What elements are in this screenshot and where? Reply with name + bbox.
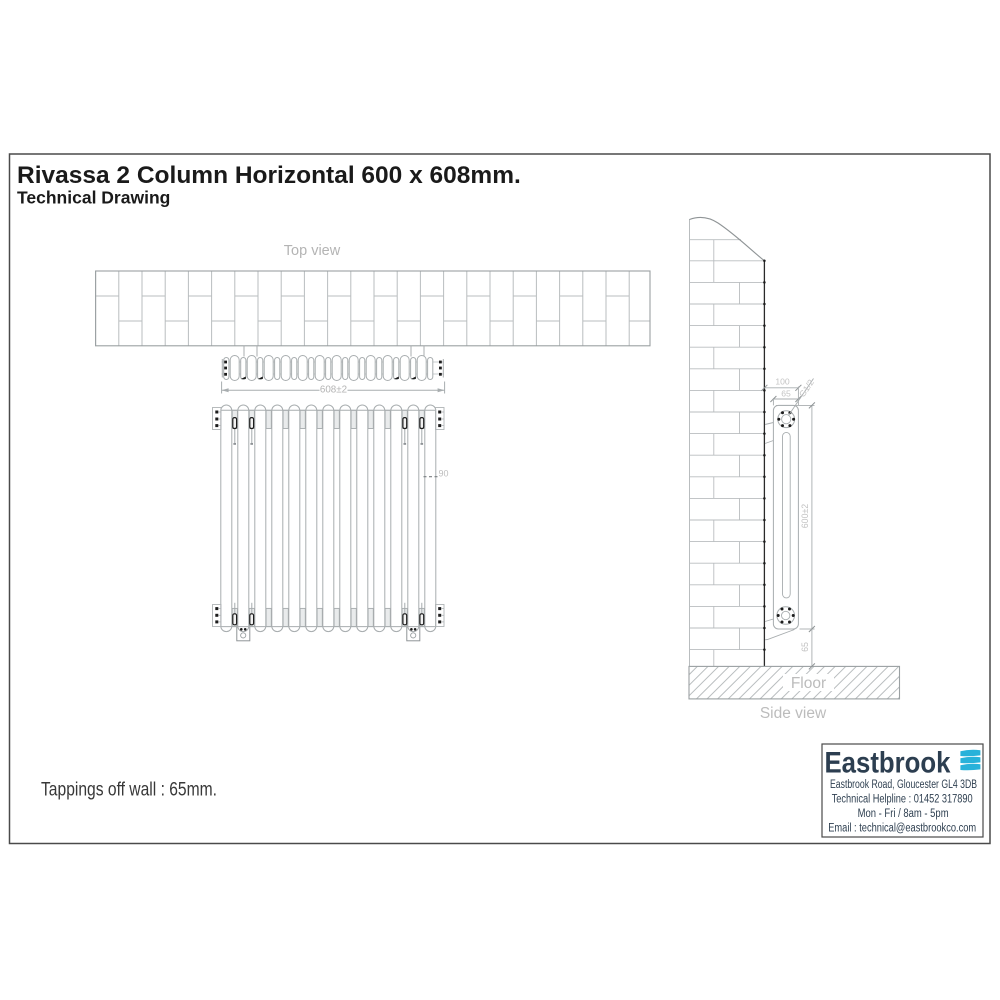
svg-text:Side view: Side view	[760, 705, 827, 722]
svg-text:Eastbrook Road, Gloucester GL4: Eastbrook Road, Gloucester GL4 3DB	[830, 779, 977, 791]
svg-text:Tappings off wall : 65mm.: Tappings off wall : 65mm.	[41, 779, 217, 801]
svg-text:Mon - Fri / 8am - 5pm: Mon - Fri / 8am - 5pm	[858, 808, 949, 820]
svg-text:G1/2: G1/2	[797, 378, 816, 399]
svg-text:100: 100	[775, 377, 790, 387]
svg-text:65: 65	[800, 642, 810, 652]
svg-text:Eastbrook: Eastbrook	[825, 747, 951, 780]
svg-text:Floor: Floor	[791, 675, 826, 692]
svg-text:65: 65	[781, 388, 791, 398]
svg-text:Technical Helpline : 01452 317: Technical Helpline : 01452 317890	[832, 794, 973, 806]
svg-text:Rivassa 2 Column Horizontal 60: Rivassa 2 Column Horizontal 600 x 608mm.	[17, 162, 521, 189]
svg-text:608±2: 608±2	[320, 384, 347, 395]
svg-text:Technical Drawing: Technical Drawing	[17, 188, 170, 208]
svg-text:90: 90	[439, 469, 449, 479]
svg-text:Email : technical@eastbrookco.: Email : technical@eastbrookco.com	[828, 823, 976, 835]
svg-text:600±2: 600±2	[800, 504, 810, 529]
svg-text:Top view: Top view	[284, 243, 341, 259]
